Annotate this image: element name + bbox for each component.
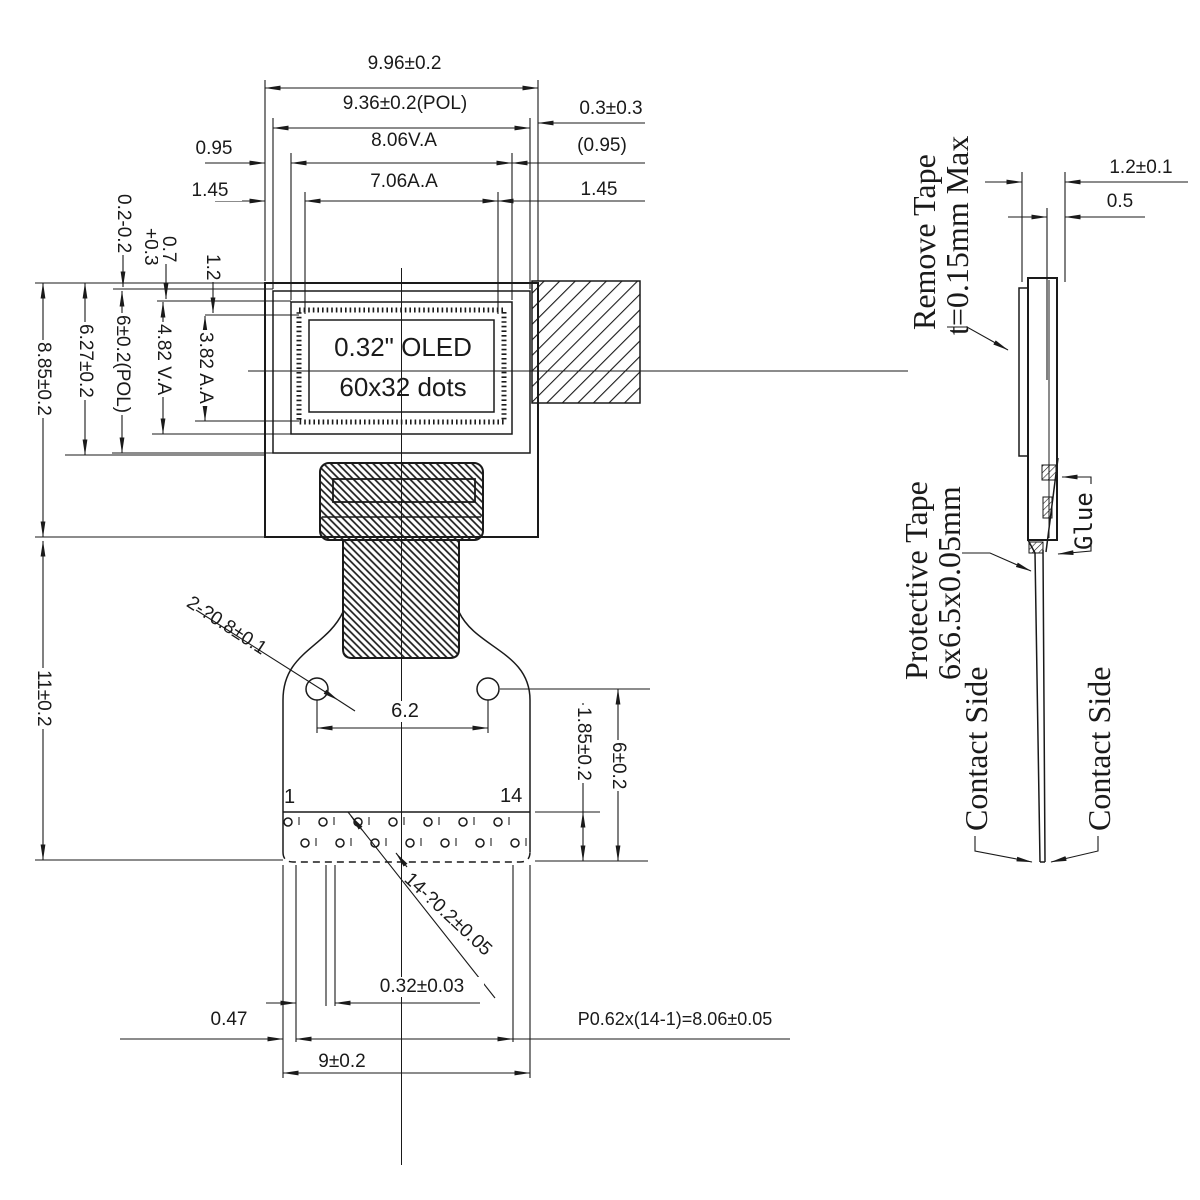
dim-va-margin-left: 0.95: [182, 139, 246, 159]
side-remove-tape-strip: [1019, 288, 1028, 456]
label-protective-tape: Protective Tape: [900, 479, 934, 682]
glue-hatch-mid: [1043, 497, 1052, 518]
dim-tail-height: 11±0.2: [33, 668, 53, 729]
dim-overall-width: 9.96±0.2: [340, 54, 469, 74]
dim-pin1-offset: 0.47: [192, 1010, 266, 1030]
oled-dimension-drawing: 9.96±0.2 9.36±0.2(POL) 0.3±0.3 0.95 8.06…: [0, 0, 1200, 1200]
glue-hatch-lower: [1029, 542, 1043, 553]
dim-va-height: 4.82 V.A: [153, 322, 173, 397]
dim-va-top-offset: 0.7: [158, 234, 178, 264]
dim-pol-gap: 0.3±0.3: [564, 99, 658, 119]
dim-glass-thickness: 0.5: [1092, 192, 1148, 212]
label-contact-side-left: Contact Side: [960, 665, 994, 833]
dim-hole-pitch: 6.2: [384, 701, 426, 722]
dim-pad-zone-height: 1.85±0.2: [573, 705, 593, 783]
pin-number-first: 1: [282, 787, 297, 808]
dim-aa-width: 7.06A.A: [352, 172, 456, 192]
label-remove-tape-thickness: t=0.15mm Max: [941, 134, 975, 337]
dim-va-margin-right: (0.95): [560, 136, 644, 156]
dim-va-width: 8.06V.A: [352, 131, 456, 151]
dim-pol-height: 6±0.2(POL): [112, 313, 132, 415]
dim-aa-top-offset: 1.2: [202, 252, 222, 282]
side-view-outlines: [1019, 278, 1058, 862]
dim-display-height: 6.27±0.2: [75, 322, 95, 400]
dim-aa-height: 3.82 A.A: [195, 330, 215, 406]
dim-pol-width: 9.36±0.2(POL): [318, 94, 492, 114]
fpc-connector: [320, 463, 483, 658]
dim-aa-margin-left: 1.45: [178, 181, 242, 201]
dim-hole-to-edge: 6±0.2: [608, 740, 628, 791]
glue-hatch-upper: [1042, 465, 1056, 480]
pin-number-last: 14: [498, 786, 524, 807]
label-remove-tape: Remove Tape: [908, 152, 942, 332]
remove-tape-tab-hatch: [532, 281, 640, 403]
dim-total-thickness: 1.2±0.1: [1090, 158, 1192, 178]
dim-pad-width: 0.32±0.03: [360, 977, 484, 997]
dim-aa-margin-right: 1.45: [562, 180, 636, 200]
side-dimension-lines: [985, 172, 1188, 380]
label-glue: Glue: [1072, 490, 1097, 552]
dim-glass-height: 8.85±0.2: [33, 340, 53, 418]
display-size-label: 0.32" OLED: [301, 334, 505, 361]
dim-body-width: 9±0.2: [300, 1052, 384, 1072]
pad-row: [284, 817, 527, 847]
mounting-hole-right: [477, 678, 499, 700]
display-resolution-label: 60x32 dots: [301, 374, 505, 401]
pad-micro-labels: [298, 817, 527, 846]
dim-pol-top-offset: 0.2-0.2: [113, 192, 133, 255]
label-protective-tape-size: 6x6.5x0.05mm: [933, 484, 967, 682]
dim-va-top-tolerance: +0.3: [140, 226, 160, 268]
dim-pad-pitch-equation: P0.62x(14-1)=8.06±0.05: [548, 1010, 802, 1029]
label-contact-side-right: Contact Side: [1083, 665, 1117, 833]
front-leaders: [196, 610, 495, 998]
side-flex-tail: [1028, 540, 1045, 862]
